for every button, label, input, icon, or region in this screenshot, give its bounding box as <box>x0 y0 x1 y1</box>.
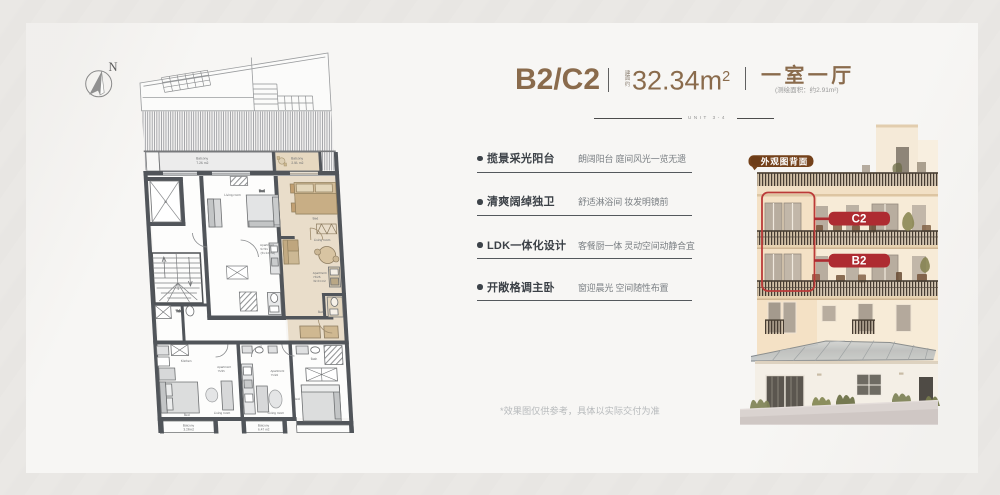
svg-text:(31.94 m2): (31.94 m2) <box>260 251 275 255</box>
svg-text:Living room: Living room <box>224 193 241 197</box>
svg-text:Kitchen: Kitchen <box>181 359 192 363</box>
svg-text:Bed: Bed <box>259 189 265 193</box>
svg-text:6.47 m2: 6.47 m2 <box>258 428 270 432</box>
svg-text:Bed: Bed <box>312 217 318 221</box>
svg-text:Balcony: Balcony <box>291 157 304 161</box>
svg-text:N: N <box>109 60 118 74</box>
svg-text:32.34 m2: 32.34 m2 <box>313 279 326 283</box>
svg-text:Bath: Bath <box>318 310 325 314</box>
svg-text:Bath: Bath <box>311 357 318 361</box>
svg-text:Tub: Tub <box>176 309 182 313</box>
svg-text:Living room: Living room <box>267 411 284 415</box>
svg-text:C2: C2 <box>852 214 867 226</box>
svg-text:2.91 m2: 2.91 m2 <box>291 161 304 165</box>
svg-text:Balcony: Balcony <box>196 157 209 161</box>
svg-text:75/22: 75/22 <box>271 373 279 377</box>
svg-text:B2: B2 <box>852 256 867 268</box>
svg-text:Living room: Living room <box>214 411 231 415</box>
svg-text:Bed: Bed <box>184 413 190 417</box>
svg-text:lift: lift <box>164 200 167 204</box>
svg-text:3.28m2: 3.28m2 <box>183 428 194 432</box>
svg-text:Living room: Living room <box>314 238 331 242</box>
svg-text:7.26 m2: 7.26 m2 <box>196 161 209 165</box>
svg-text:75/25: 75/25 <box>217 369 225 373</box>
svg-text:Bed: Bed <box>294 397 300 401</box>
svg-text:外观图背面: 外观图背面 <box>760 155 808 166</box>
